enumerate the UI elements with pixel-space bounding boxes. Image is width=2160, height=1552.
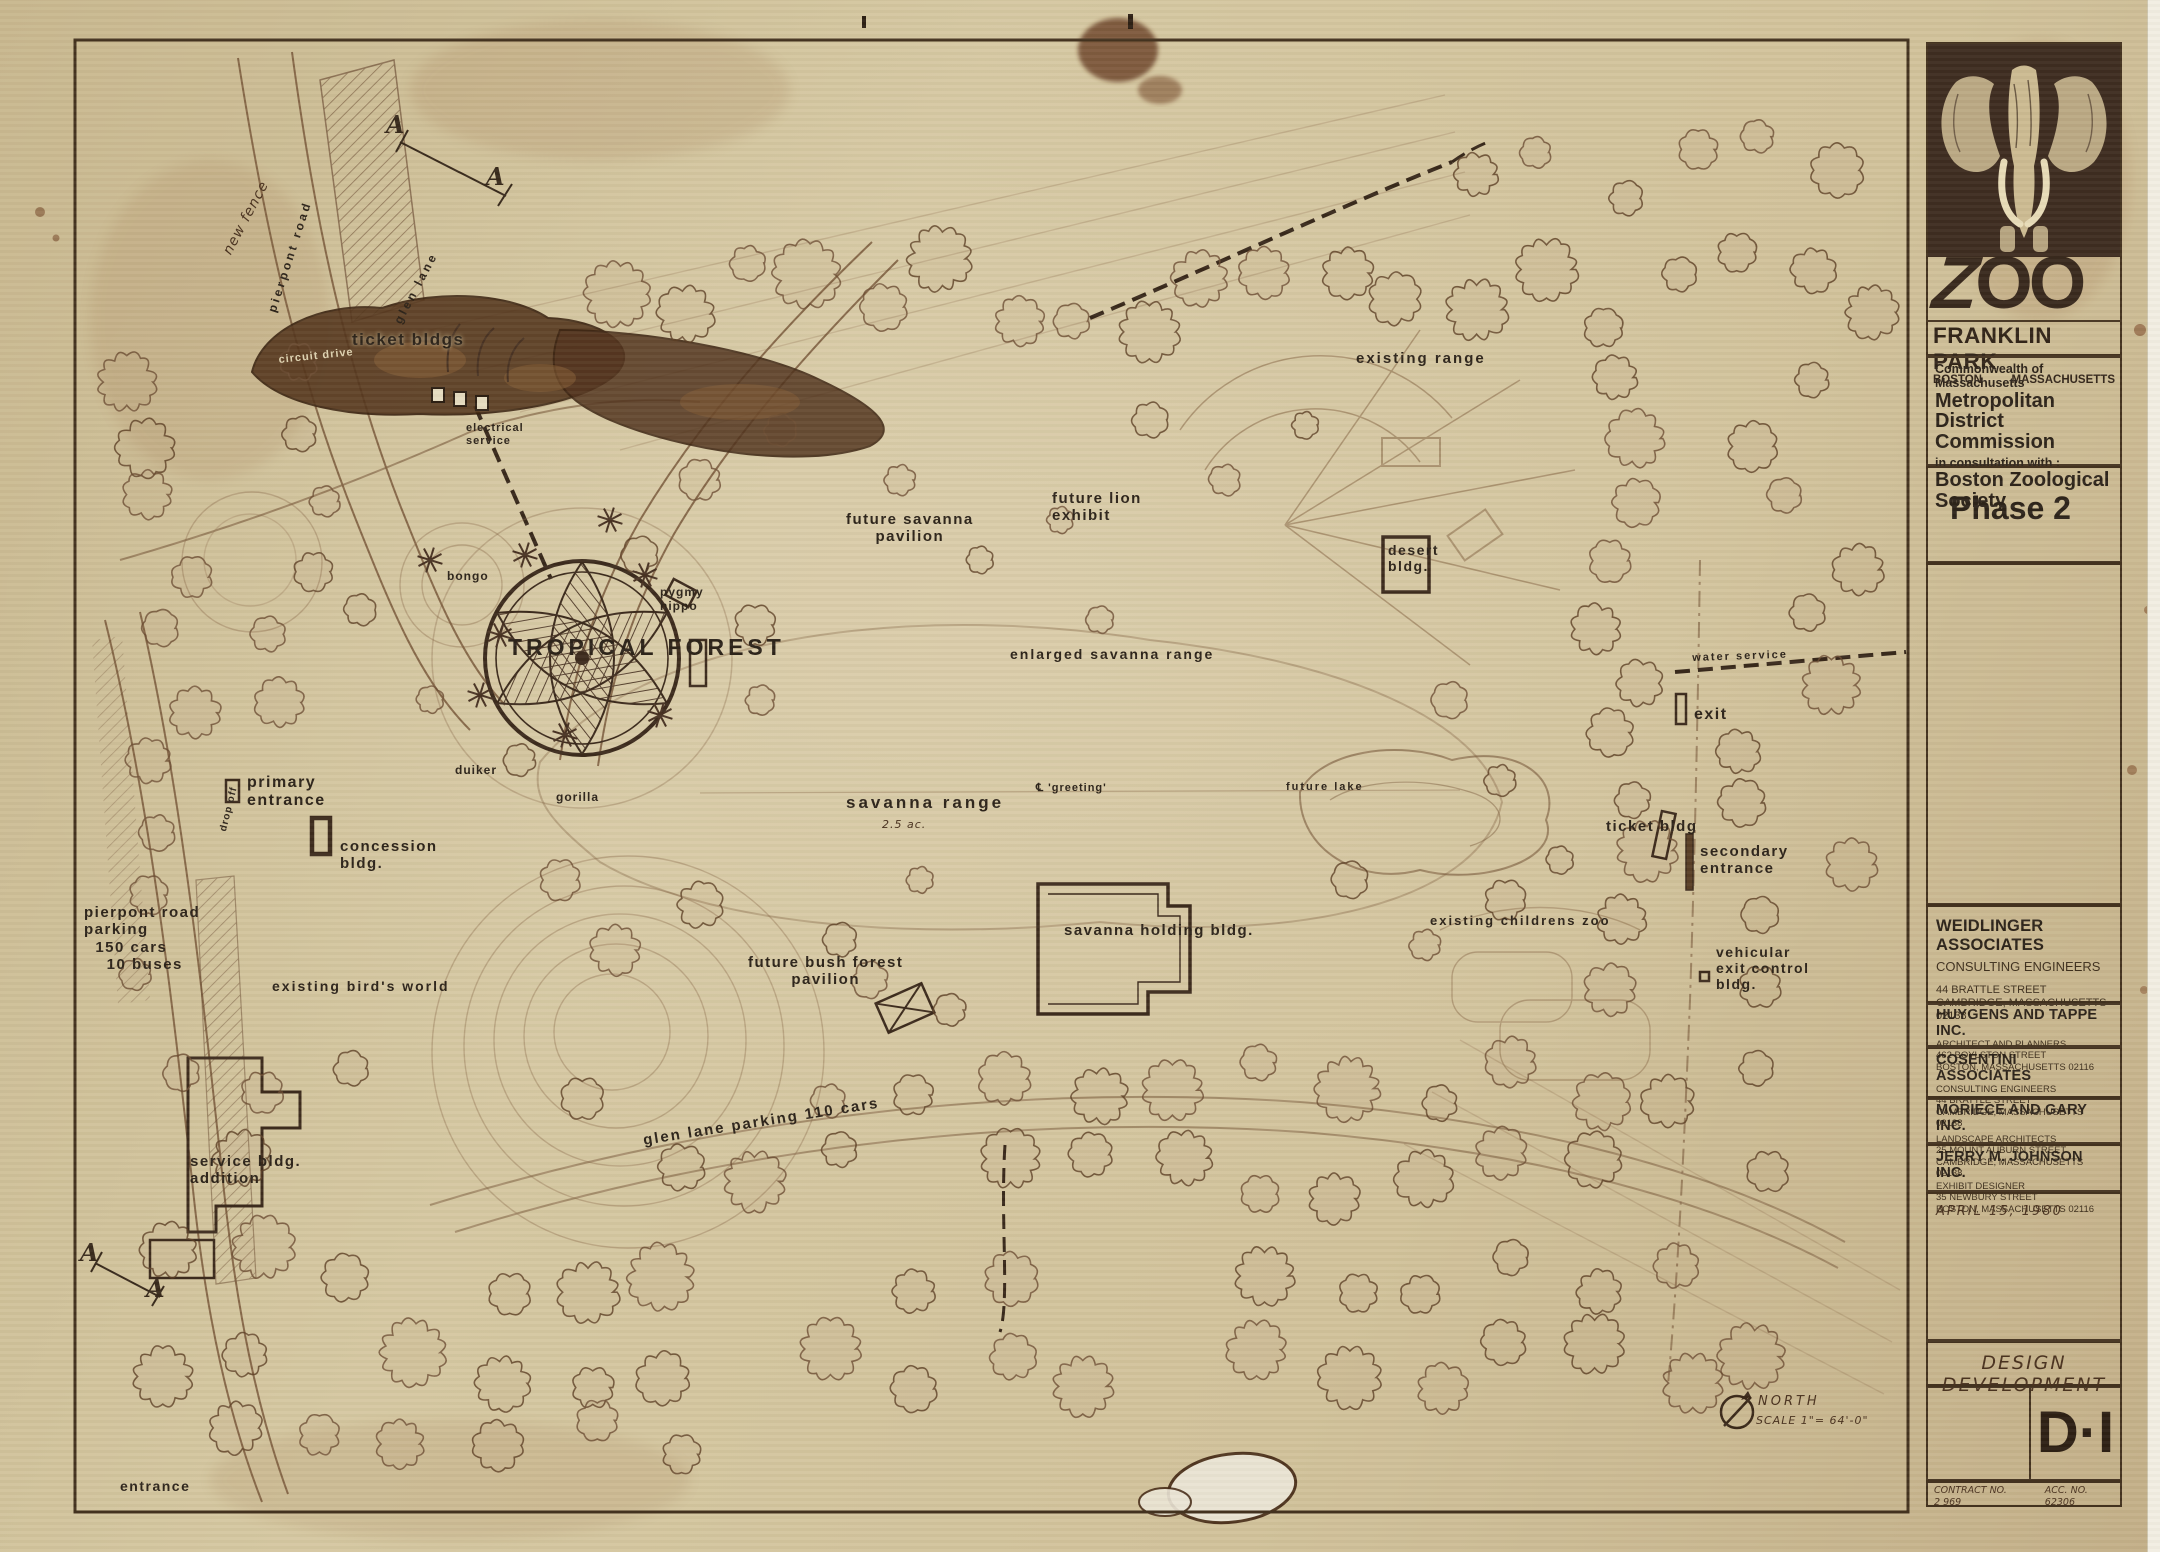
elephant-panel <box>1928 44 2120 257</box>
phase-box: Phase 2 <box>1926 466 2122 563</box>
label-secondary-entrance: secondary entrance <box>1700 843 1789 878</box>
consultant-box-weidlinger: WEIDLINGER ASSOCIATES CONSULTING ENGINEE… <box>1926 905 2122 1003</box>
consultant-name: MORIECE AND GARY INC. <box>1936 1102 2112 1134</box>
scale-label: SCALE 1"= 64'-0" <box>1756 1414 1869 1427</box>
buildings <box>150 537 1709 1278</box>
sheet-number: D·I <box>2031 1388 2120 1478</box>
label-bongo: bongo <box>447 570 489 584</box>
north-label: NORTH <box>1758 1394 1820 1409</box>
existing-range-paths <box>1180 330 1575 665</box>
label-desert-bldg: desert bldg. <box>1388 542 1439 574</box>
label-savanna-holding-bldg: savanna holding bldg. <box>1064 922 1254 939</box>
phase-label: Phase 2 <box>1928 468 2120 527</box>
consultant-name: COSENTINI ASSOCIATES <box>1936 1052 2112 1084</box>
label-duiker: duiker <box>455 764 497 778</box>
commonwealth-line: Commonwealth of Massachusetts <box>1935 362 2113 390</box>
consultant-box-johnson: JERRY M. JOHNSON INC. EXHIBIT DESIGNER35… <box>1926 1144 2122 1192</box>
north-arrow <box>1721 1391 1753 1428</box>
label-tropical-forest: TROPICAL FOREST <box>508 634 785 660</box>
label-future-lion-exhibit: future lion exhibit <box>1052 490 1142 525</box>
label-electrical-service: electrical service <box>466 422 524 447</box>
label-vehicular-exit-control: vehicular exit control bldg. <box>1716 944 1809 992</box>
acc-number: ACC. NO. 62306 <box>2045 1485 2088 1503</box>
section-marker-a-bottom-1: A <box>80 1238 99 1267</box>
section-marker-a-top-2: A <box>486 162 505 191</box>
label-greeting: ℄ 'greeting' <box>1036 782 1107 795</box>
zoo-logotype: ZOO <box>1928 250 2120 317</box>
label-existing-birds-world: existing bird's world <box>272 978 450 994</box>
consultant-box-huygens: HUYGENS AND TAPPE INC. ARCHITECT AND PLA… <box>1926 1003 2122 1047</box>
label-future-savanna-pavilion: future savanna pavilion <box>846 511 974 546</box>
empty-notes-box <box>1926 563 2122 905</box>
consultant-box-moriece: MORIECE AND GARY INC. LANDSCAPE ARCHITEC… <box>1926 1098 2122 1144</box>
mdc-line: Metropolitan District Commission <box>1935 391 2113 452</box>
sheet-number-cell: D·I <box>2029 1386 2122 1481</box>
label-exit: exit <box>1694 706 1728 724</box>
date-note: APRIL 15, 1980 <box>1928 1194 2120 1219</box>
label-future-lake: future lake <box>1286 781 1364 794</box>
consultant-role: CONSULTING ENGINEERS <box>1936 959 2112 974</box>
label-existing-childrens-zoo: existing childrens zoo <box>1430 914 1611 929</box>
section-marker-a-top-1: A <box>386 110 405 139</box>
label-service-bldg-addition: service bldg. addition <box>190 1153 301 1188</box>
label-pygmy-hippo: pygmy hippo <box>660 586 704 614</box>
label-pierpont-parking: pierpont road parking 150 cars 10 buses <box>84 904 200 973</box>
revision-cell <box>1926 1386 2031 1481</box>
contract-strip: CONTRACT NO. 2 969 ACC. NO. 62306 <box>1926 1481 2122 1507</box>
section-marker-a-bottom-2: A <box>146 1274 165 1303</box>
consultant-box-cosentini: COSENTINI ASSOCIATES CONSULTING ENGINEER… <box>1926 1047 2122 1098</box>
label-gorilla: gorilla <box>556 791 599 805</box>
label-savanna-range: savanna range <box>846 793 1004 813</box>
label-existing-range: existing range <box>1356 350 1486 367</box>
elephant-illustration <box>1928 44 2120 257</box>
contract-number: CONTRACT NO. 2 969 <box>1934 1485 2007 1503</box>
label-ticket-bldg: ticket bldg <box>1606 818 1698 835</box>
consultant-name: JERRY M. JOHNSON INC. <box>1936 1149 2112 1181</box>
commission-box: Commonwealth of Massachusetts Metropolit… <box>1926 356 2122 466</box>
scan-edge <box>2147 0 2160 1552</box>
note-savanna-acreage: 2.5 ac. <box>882 818 926 831</box>
zoo-letters-oo: OO <box>1975 241 2082 324</box>
label-future-bush-forest-pavilion: future bush forest pavilion <box>748 954 903 989</box>
label-primary-entrance: primary entrance <box>247 774 326 811</box>
stage-box: DESIGN DEVELOPMENT <box>1926 1341 2122 1386</box>
drawing-sheet: A A A A new fence pierpont road glen lan… <box>0 0 2160 1552</box>
label-enlarged-savanna-range: enlarged savanna range <box>1010 646 1214 662</box>
consultant-name: WEIDLINGER ASSOCIATES <box>1936 917 2112 955</box>
label-entrance: entrance <box>120 1478 190 1494</box>
date-box: APRIL 15, 1980 <box>1926 1192 2122 1341</box>
label-concession-bldg: concession bldg. <box>340 838 438 873</box>
label-ticket-bldgs: ticket bldgs <box>352 330 464 350</box>
consultant-name: HUYGENS AND TAPPE INC. <box>1936 1007 2112 1039</box>
title-block-logo-box: ZOO FRANKLIN PARK BOSTON MASSACHUSETTS <box>1926 42 2122 356</box>
